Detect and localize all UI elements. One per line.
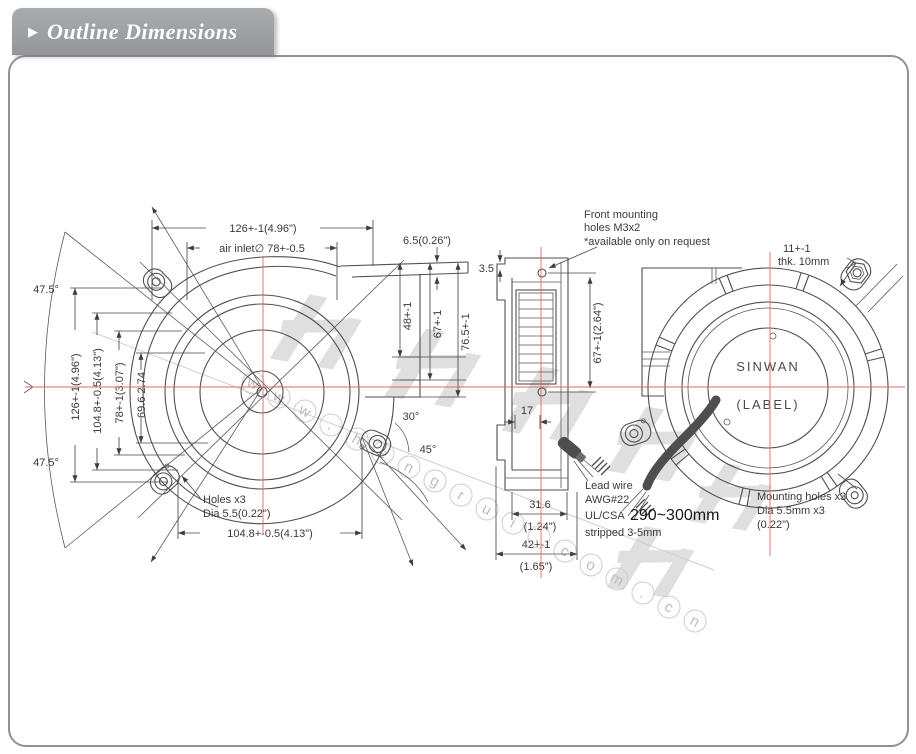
side-wire-plug [556, 435, 588, 465]
label-circle [708, 328, 828, 448]
impeller-hatch-lines [519, 300, 553, 372]
mounting-note-line3: (0.22") [757, 519, 790, 531]
holes-note-line2: Dia 5.5(0.22") [203, 508, 271, 520]
dim-ear: 11+-1 [783, 243, 811, 255]
watermark-url-letters: www.hengrui.com.cn [242, 372, 706, 632]
section-header-tab: ▶ Outline Dimensions [12, 8, 274, 55]
dim-78: 78+-1(3.07") [114, 362, 126, 423]
lead-wire-line4: stripped 3-5mm [585, 527, 661, 539]
lead-wires [556, 400, 716, 519]
front-view-blower-body [130, 257, 468, 524]
dim-hole-span-v: 104.8+-0.5(4.13") [92, 348, 104, 434]
dim-316-in: (1.24") [524, 521, 557, 533]
dim-67: 67+-1 [432, 310, 444, 338]
lead-wire-length: 290~300mm [630, 507, 719, 524]
watermark-letter: r [455, 487, 467, 504]
watermark-letter: c [557, 542, 572, 561]
technical-drawing-svg: www.hengrui.com.cn [0, 0, 916, 754]
mounting-note-line2: Dia 5.5mm x3 [757, 505, 825, 517]
impeller-circle [200, 330, 324, 454]
outlet-flange-outline [642, 268, 742, 396]
dim-width-top: 126+-1(4.96") [229, 223, 296, 235]
outline-dimensions-page: ▶ Outline Dimensions www.hengrui.com.cn [0, 0, 916, 754]
lead-wire-line1: Lead wire [585, 480, 633, 492]
page-title: Outline Dimensions [47, 19, 238, 45]
dim-316-mm: 31.6 [529, 499, 550, 511]
lead-wire-line2: AWG#22 [585, 494, 629, 506]
dim-hole-pitch: 67+-1(2.64") [592, 302, 604, 363]
angle-475-top: 47.5° [33, 284, 59, 296]
triangle-bullet-icon: ▶ [28, 25, 38, 38]
brand-label: SINWAN [736, 359, 800, 374]
front-mounting-note-line3: *available only on request [584, 236, 710, 248]
dim-lip: 6.5(0.26") [403, 235, 451, 247]
watermark-letter: i [507, 515, 518, 532]
dim-air-inlet: air inlet∅ 78+-0.5 [219, 243, 305, 255]
dim-thk: thk. 10mm [778, 256, 829, 268]
angle-45: 45° [420, 444, 437, 456]
watermark-letter: u [479, 500, 494, 519]
dim-hole-span-h: 104.8+-0.5(4.13") [227, 528, 313, 540]
watermark-letter: n [687, 612, 702, 631]
rear-ear-top-right [837, 254, 876, 294]
lead-wire-note: Lead wire AWG#22 UL/CSA 290~300mm stripp… [585, 480, 719, 539]
front-mounting-note-line2: holes M3x2 [584, 222, 640, 234]
mounting-ear-top-left [139, 265, 176, 302]
dim-42-mm: 42+-1 [522, 539, 550, 551]
rear-housing-outer [648, 268, 888, 508]
watermark-letter: g [427, 472, 442, 491]
front-mounting-hole-top [538, 269, 546, 277]
holes-note-line1: Holes x3 [203, 494, 246, 506]
front-mounting-note-line1: Front mounting [584, 209, 658, 221]
dim-lip-offset: 3.5 [479, 263, 494, 275]
label-placeholder: (LABEL) [736, 397, 799, 412]
watermark-letter: c [661, 598, 676, 617]
dim-48: 48+-1 [402, 302, 414, 330]
watermark-letter: o [583, 556, 598, 575]
angle-475-bottom: 47.5° [33, 457, 59, 469]
side-view-blower [497, 258, 568, 490]
dim-696: 69.6 2.74 [136, 372, 148, 418]
dim-765: 76.5+-1 [460, 313, 472, 351]
angle-30: 30° [403, 411, 420, 423]
dim-17: 17 [521, 405, 533, 417]
dim-42-in: (1.65") [520, 561, 553, 573]
lead-wire-line3: UL/CSA [585, 510, 625, 522]
watermark-letter: . [637, 585, 649, 602]
watermark-letter: w [295, 401, 314, 422]
